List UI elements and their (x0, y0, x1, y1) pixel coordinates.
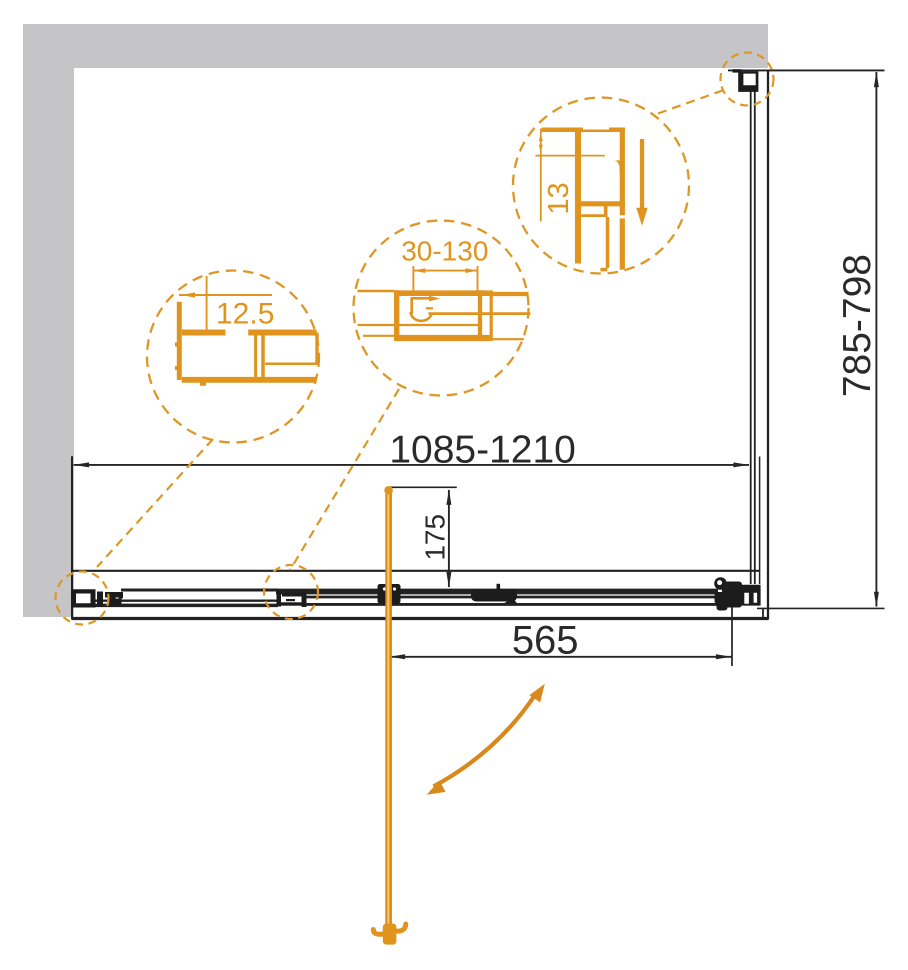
svg-text:30-130: 30-130 (401, 236, 488, 267)
svg-text:785-798: 785-798 (836, 254, 879, 397)
svg-text:13: 13 (543, 182, 575, 214)
svg-text:1085-1210: 1085-1210 (389, 428, 576, 471)
svg-text:565: 565 (512, 619, 579, 663)
svg-text:12.5: 12.5 (216, 298, 274, 331)
svg-text:175: 175 (419, 514, 450, 561)
